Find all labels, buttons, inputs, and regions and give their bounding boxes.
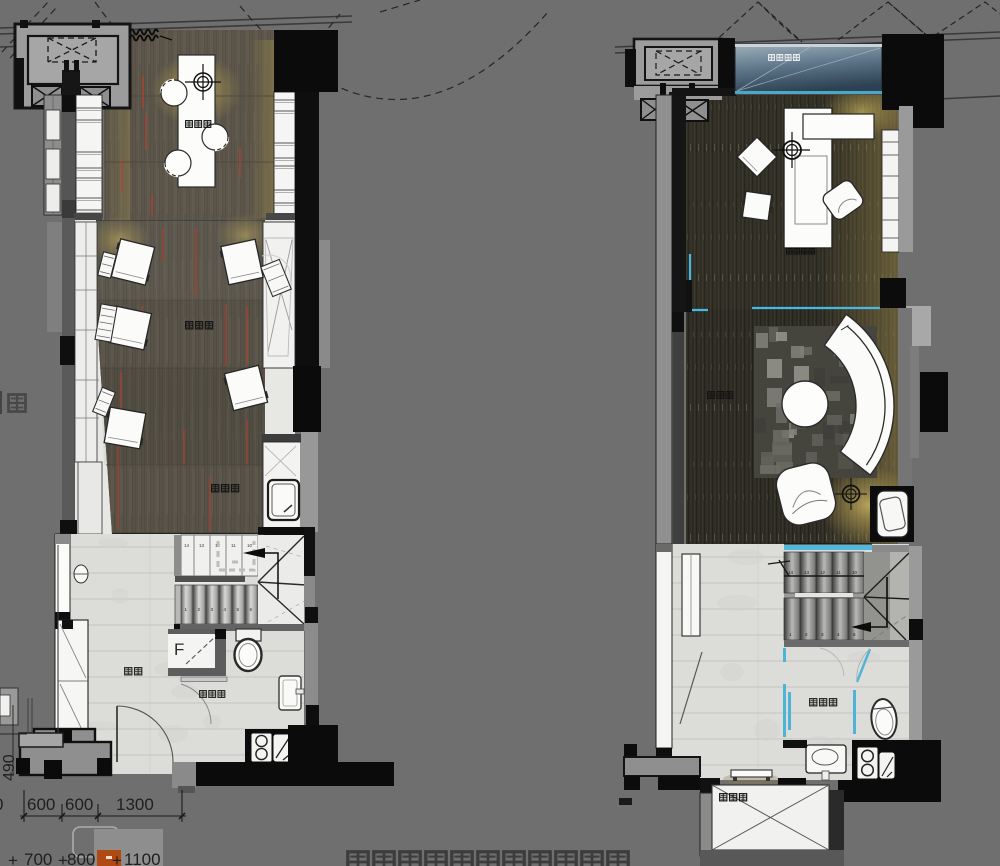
svg-text:2: 2 (805, 632, 808, 637)
svg-text:2: 2 (198, 607, 201, 612)
svg-text:1: 1 (789, 632, 792, 637)
svg-text:12: 12 (820, 570, 826, 575)
svg-text:10: 10 (247, 543, 253, 548)
svg-text:11: 11 (836, 570, 841, 575)
svg-text:490: 490 (1, 754, 18, 781)
svg-text:700: 700 (24, 850, 52, 866)
svg-text:5: 5 (853, 632, 856, 637)
svg-text:800: 800 (67, 850, 95, 866)
svg-text:1300: 1300 (116, 795, 154, 814)
svg-text:F: F (174, 640, 184, 659)
svg-text:10: 10 (852, 570, 858, 575)
svg-text:5: 5 (237, 607, 240, 612)
svg-text:600: 600 (27, 795, 55, 814)
svg-text:13: 13 (199, 543, 205, 548)
svg-text:14: 14 (184, 543, 190, 548)
svg-text:3: 3 (211, 607, 214, 612)
svg-text:1: 1 (185, 607, 188, 612)
svg-text:+: + (58, 851, 68, 866)
svg-text:+: + (112, 851, 122, 866)
svg-text:+: + (8, 851, 18, 866)
svg-text:4: 4 (837, 632, 840, 637)
svg-text:6: 6 (250, 607, 253, 612)
svg-text:4: 4 (224, 607, 227, 612)
svg-text:600: 600 (65, 795, 93, 814)
svg-text:1100: 1100 (124, 850, 161, 866)
svg-text:0: 0 (0, 795, 3, 814)
svg-text:13: 13 (804, 570, 810, 575)
svg-text:14: 14 (788, 570, 794, 575)
svg-text:11: 11 (231, 543, 236, 548)
svg-text:3: 3 (821, 632, 824, 637)
